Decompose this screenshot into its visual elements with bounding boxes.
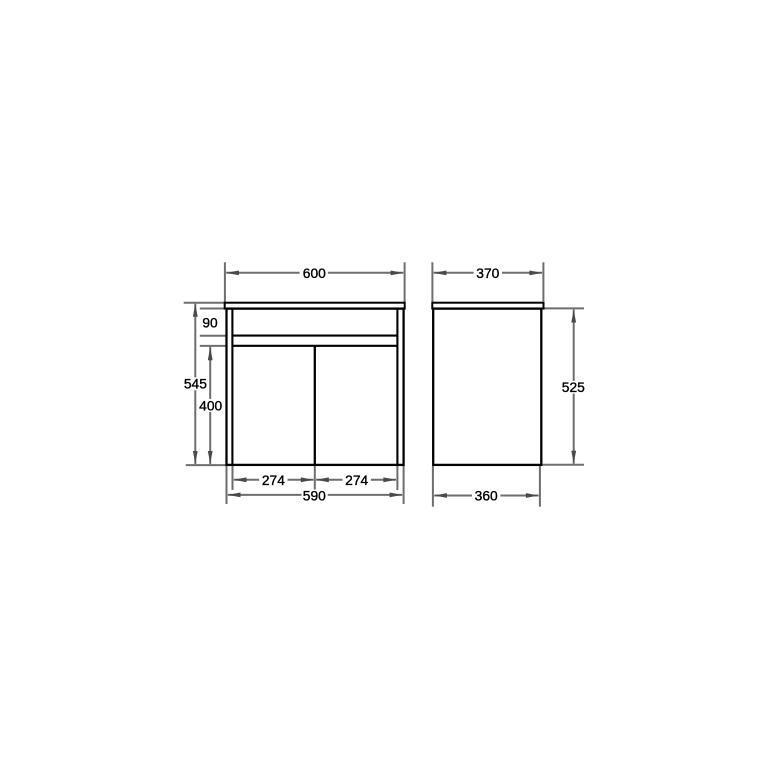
svg-text:370: 370 [476, 266, 499, 281]
svg-text:525: 525 [562, 380, 585, 395]
svg-text:600: 600 [303, 266, 326, 281]
svg-text:400: 400 [199, 398, 222, 413]
svg-text:274: 274 [345, 473, 368, 488]
svg-text:545: 545 [184, 377, 207, 392]
svg-text:90: 90 [202, 315, 218, 330]
svg-text:360: 360 [475, 488, 498, 503]
svg-text:274: 274 [262, 473, 285, 488]
svg-text:590: 590 [303, 489, 326, 504]
